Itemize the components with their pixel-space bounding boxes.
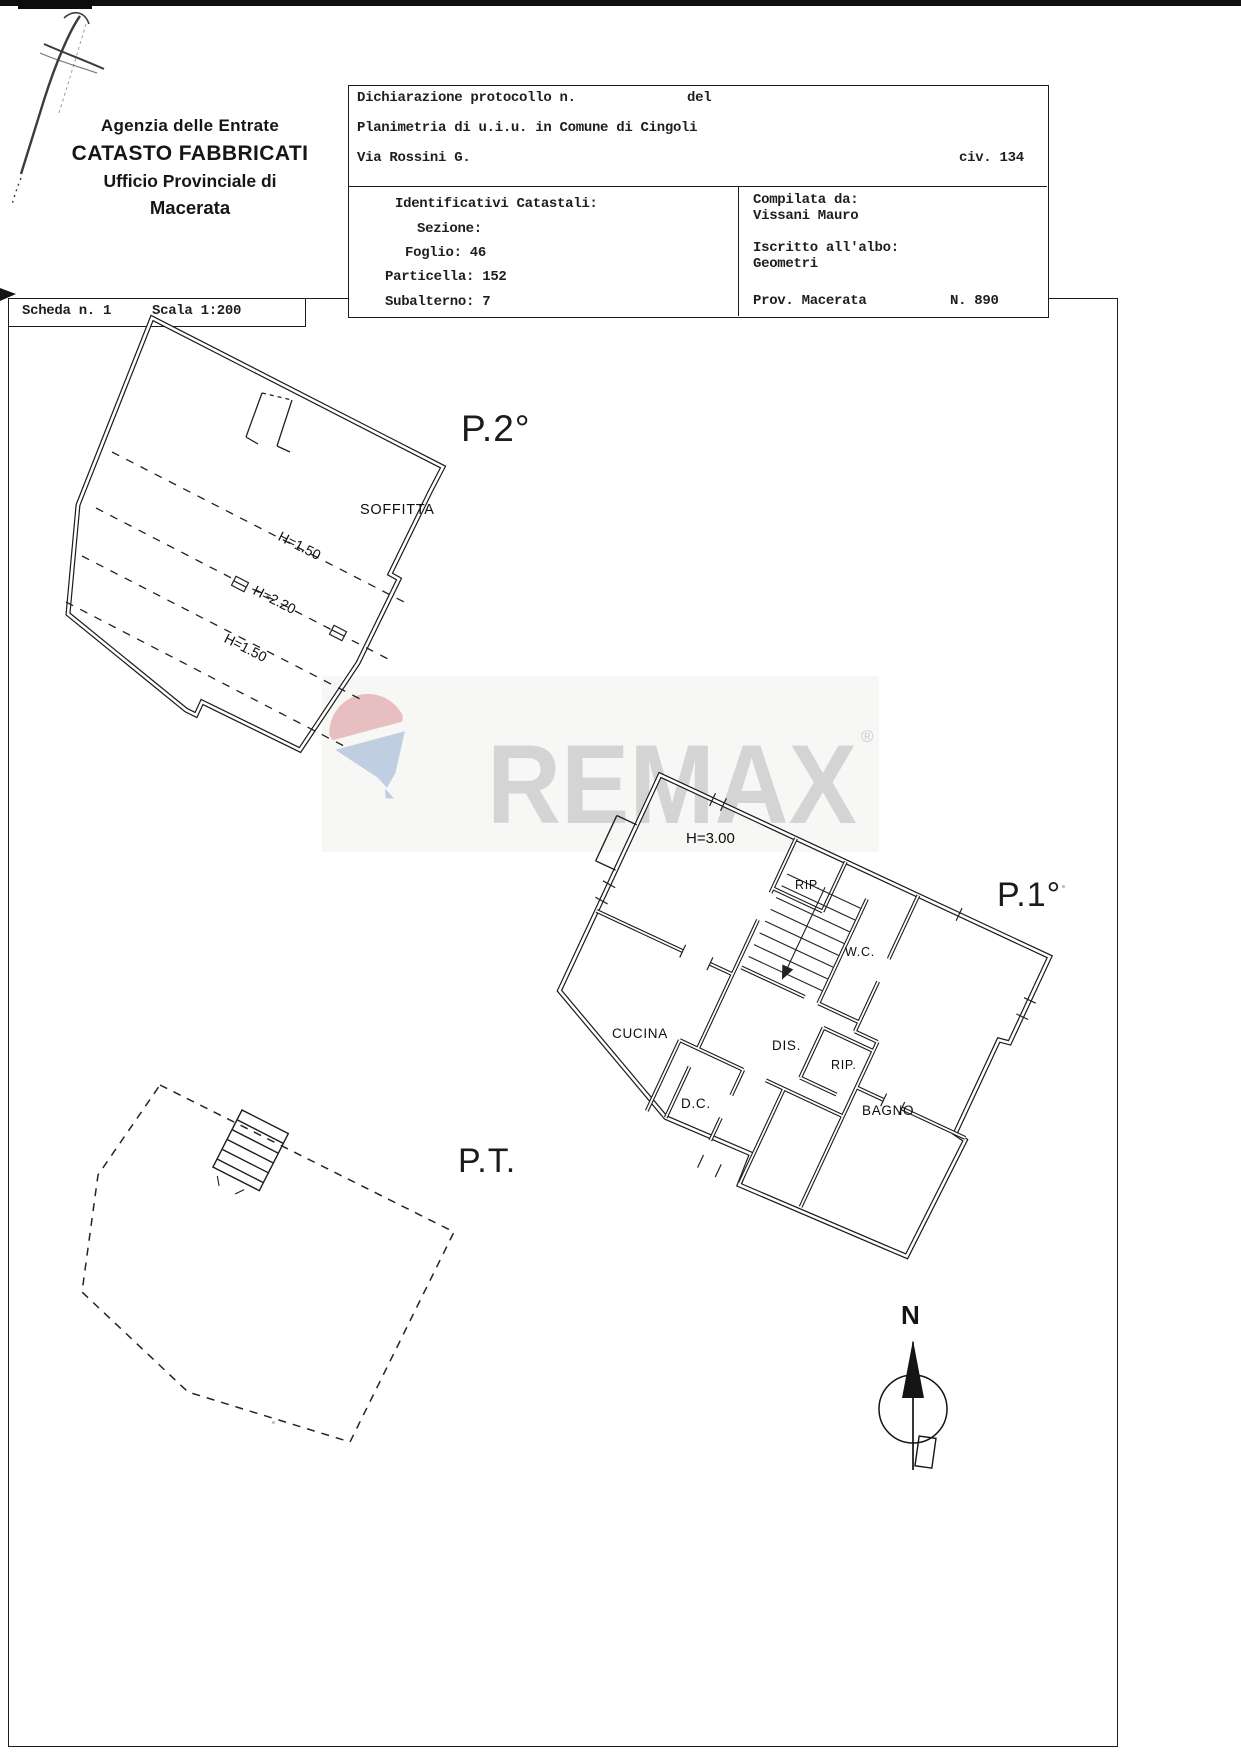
prov-field: Prov. Macerata	[753, 293, 866, 309]
planimetria-line: Planimetria di u.i.u. in Comune di Cingo…	[357, 120, 697, 136]
foglio-field: Foglio: 46	[405, 245, 486, 261]
agency-name: Agenzia delle Entrate	[30, 116, 350, 136]
scan-speck	[272, 1421, 275, 1424]
civic-number: civ. 134	[959, 150, 1024, 166]
albo-number: N. 890	[950, 293, 999, 309]
room-label-dis: DIS.	[772, 1038, 801, 1053]
room-label-rip-2: RIP.	[831, 1058, 857, 1072]
street-line: Via Rossini G.	[357, 150, 470, 166]
table-divider-horizontal	[348, 186, 1047, 187]
catasto-title: CATASTO FABBRICATI	[30, 142, 350, 166]
room-label-bagno: BAGNO	[862, 1103, 914, 1118]
protocol-label: Dichiarazione protocollo n.	[357, 90, 576, 106]
room-label-dc: D.C.	[681, 1096, 711, 1111]
remax-watermark-box	[322, 676, 879, 852]
north-label: N	[901, 1300, 920, 1331]
albo-value: Geometri	[753, 256, 818, 272]
room-label-cucina: CUCINA	[612, 1026, 668, 1041]
room-label-wc: W.C.	[845, 945, 875, 959]
scheda-number: Scheda n. 1	[22, 303, 111, 319]
scan-speck	[1062, 885, 1065, 888]
office-city: Macerata	[30, 197, 350, 219]
subalterno-field: Subalterno: 7	[385, 294, 490, 310]
drawing-scale: Scala 1:200	[152, 303, 241, 319]
room-label-rip-1: RIP.	[795, 878, 821, 892]
albo-label: Iscritto all'albo:	[753, 240, 899, 256]
room-label-soffitta: SOFFITTA	[360, 502, 435, 518]
sezione-field: Sezione:	[417, 221, 482, 237]
particella-field: Particella: 152	[385, 269, 507, 285]
compilata-label: Compilata da:	[753, 192, 858, 208]
plan-title-pt: P.T.	[458, 1142, 516, 1181]
office-line: Ufficio Provinciale di	[30, 171, 350, 192]
identificativi-title: Identificativi Catastali:	[395, 196, 598, 212]
agency-header: Agenzia delle Entrate CATASTO FABBRICATI…	[30, 116, 350, 219]
protocol-del-label: del	[687, 90, 711, 106]
table-divider-vertical	[738, 186, 739, 316]
compiler-name: Vissani Mauro	[753, 208, 858, 224]
height-label-p1: H=3.00	[686, 830, 735, 847]
plan-title-p1: P.1°	[997, 876, 1061, 915]
plan-title-p2: P.2°	[461, 408, 531, 450]
drawing-frame	[8, 298, 1118, 1747]
scan-artifact-top-blob	[18, 0, 92, 9]
cadastral-document-page: REMAX ® Agenzia delle Entrate CATASTO FA…	[0, 0, 1241, 1755]
scan-artifact-top-bar	[0, 0, 1241, 6]
